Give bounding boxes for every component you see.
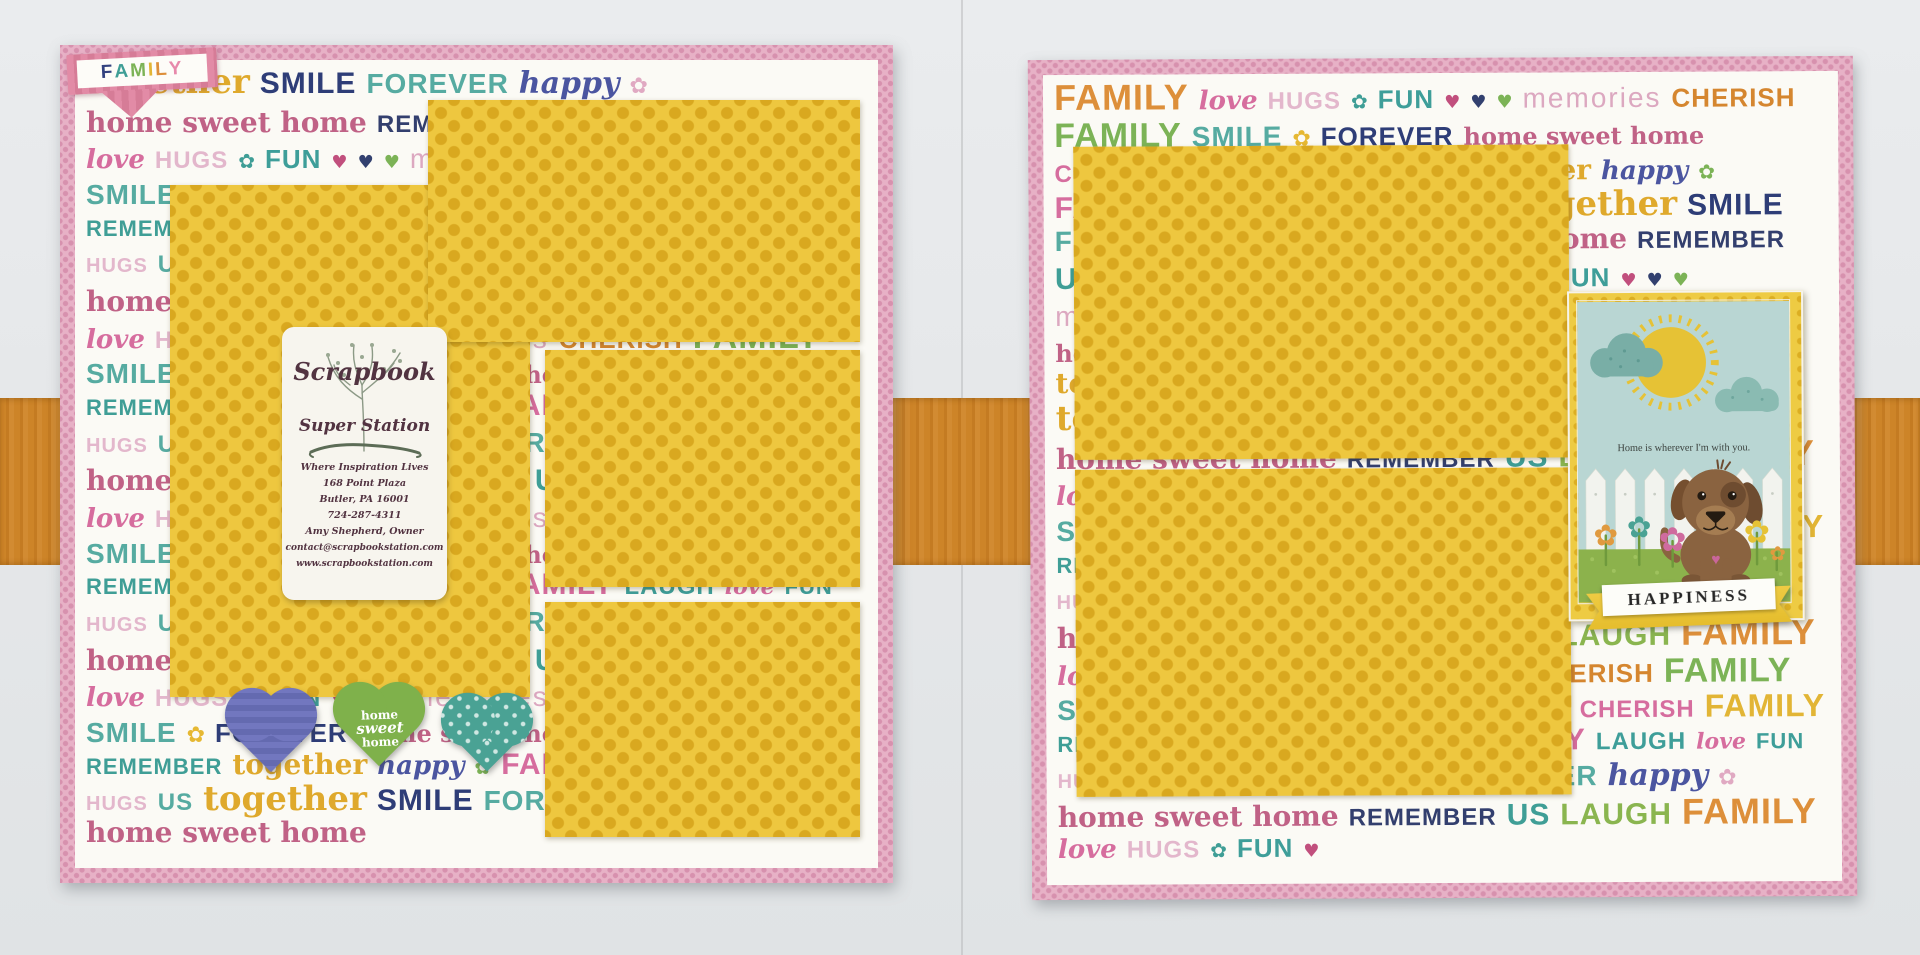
paper-word: FAMILY xyxy=(1054,79,1189,116)
paper-word: ✿ xyxy=(187,725,205,747)
business-card-phone: 724-287-4311 xyxy=(282,508,447,524)
paper-word: REMEMBER xyxy=(86,756,222,778)
dog-scene-illustration: Home is wherever I'm with you. xyxy=(1577,300,1791,603)
paper-word: happy xyxy=(519,69,620,100)
paper-word: SMILE xyxy=(86,719,177,748)
paper-word: ♥ xyxy=(384,154,400,172)
paper-word: HUGS xyxy=(1127,838,1200,863)
happiness-banner: HAPPINESS xyxy=(1585,571,1792,643)
right-photo-mat-top xyxy=(1073,144,1570,460)
paper-word: happy xyxy=(377,753,464,780)
paper-word: SMILE xyxy=(86,360,177,389)
paper-word: FUN xyxy=(1237,835,1294,862)
paper-word: ✿ xyxy=(1210,840,1227,860)
business-card-address1: 168 Point Plaza xyxy=(282,476,447,492)
family-banner: FAMILY xyxy=(66,47,219,125)
left-photo-mat-bottom-right xyxy=(545,602,860,837)
paper-word: love xyxy=(86,506,145,533)
paper-word: SMILE xyxy=(86,540,177,569)
paper-word: ♥ xyxy=(358,154,374,172)
dog-chest-heart-icon: ♥ xyxy=(1711,551,1720,568)
paper-word: ✿ xyxy=(629,76,647,98)
paper-word: SMILE xyxy=(86,181,177,210)
paper-word: LAUGH xyxy=(1560,800,1672,831)
business-card-title: Scrapbook xyxy=(282,357,447,386)
family-banner-letter: L xyxy=(155,59,170,82)
svg-text:✿: ✿ xyxy=(1658,522,1686,559)
scene-message: Home is wherever I'm with you. xyxy=(1617,442,1750,454)
paper-word: happy xyxy=(1601,158,1688,185)
paper-word: ✿ xyxy=(238,151,255,171)
paper-word: ♥ xyxy=(1470,94,1486,112)
paper-word: SMILE xyxy=(260,69,357,100)
green-heart-text: home sweet home xyxy=(329,707,430,749)
family-banner-letter: A xyxy=(114,61,131,84)
paper-word: FAMILY xyxy=(1664,653,1792,688)
paper-word: home sweet home xyxy=(86,819,367,848)
paper-word: love xyxy=(1199,88,1258,115)
paper-word: love xyxy=(1058,837,1117,864)
paper-word: FUN xyxy=(1756,730,1804,753)
paper-word: SMILE xyxy=(377,786,474,817)
photo-backdrop: togetherSMILEFOREVERhappy✿home sweet hom… xyxy=(0,0,1920,955)
business-card-subtitle: Super Station xyxy=(282,416,447,436)
left-photo-mat-middle-right xyxy=(545,350,860,587)
family-banner-letter: F xyxy=(100,61,115,84)
paper-word: ✿ xyxy=(1698,162,1715,182)
paper-word: HUGS xyxy=(86,256,148,276)
paper-word: love xyxy=(86,327,145,354)
paper-word: ♥ xyxy=(1673,272,1689,290)
paper-word: home sweet home xyxy=(1058,803,1339,833)
paper-word: memories xyxy=(1522,84,1661,113)
purple-striped-heart xyxy=(230,693,284,747)
paper-word: HUGS xyxy=(86,794,148,814)
left-scrapbook-page: togetherSMILEFOREVERhappy✿home sweet hom… xyxy=(60,45,893,883)
paper-word: together xyxy=(203,782,367,817)
paper-word: HUGS xyxy=(86,436,148,456)
paper-word: love xyxy=(1696,730,1746,753)
business-card-tagline: Where Inspiration Lives xyxy=(282,460,447,476)
paper-word: FOREVER xyxy=(366,70,508,99)
paper-word: FAMILY xyxy=(1682,793,1817,830)
paper-word: love xyxy=(86,685,145,712)
paper-word: REMEMBER xyxy=(1349,806,1497,831)
paper-word: ♥ xyxy=(1303,842,1319,860)
paper-word: HUGS xyxy=(155,149,228,173)
paper-word: happy xyxy=(1607,761,1708,792)
paper-word: FUN xyxy=(1378,86,1435,113)
paper-word: ♥ xyxy=(1444,94,1460,112)
paper-word: CHERISH xyxy=(1580,698,1695,723)
business-card-owner: Amy Shepherd, Owner xyxy=(282,524,447,540)
paper-word: ✿ xyxy=(1351,91,1368,111)
family-banner-letter: Y xyxy=(168,58,184,81)
paper-word: ♥ xyxy=(1620,272,1636,290)
paper-word: ♥ xyxy=(1647,272,1663,290)
paper-word: ✿ xyxy=(1718,768,1737,791)
family-banner-letter: M xyxy=(130,60,149,83)
paper-word: HUGS xyxy=(86,615,148,635)
svg-text:✿: ✿ xyxy=(1627,511,1652,544)
paper-word: ♥ xyxy=(1496,94,1512,112)
svg-text:✿: ✿ xyxy=(1744,515,1770,550)
paper-word: together xyxy=(232,751,367,780)
right-photo-mat-bottom xyxy=(1075,467,1572,797)
svg-text:✿: ✿ xyxy=(1593,519,1618,552)
paper-word: REMEMBER xyxy=(1637,228,1785,253)
paper-word: FAMILY xyxy=(1705,689,1826,722)
paper-word: CHERISH xyxy=(1671,84,1795,111)
paper-word: FUN xyxy=(265,146,321,173)
paper-word: LAUGH xyxy=(1596,730,1686,755)
right-scrapbook-page: FAMILYloveHUGS✿FUN♥♥♥memoriesCHERISHFAMI… xyxy=(1028,56,1857,900)
family-banner-tail xyxy=(100,88,161,119)
swash-divider-icon xyxy=(305,440,425,458)
paper-word: love xyxy=(86,147,145,174)
paper-word: HUGS xyxy=(1268,90,1341,115)
paper-word: US xyxy=(1507,801,1551,832)
paper-word: US xyxy=(158,791,193,815)
paper-word: SMILE xyxy=(1687,190,1784,221)
business-card-website: www.scrapbookstation.com xyxy=(282,556,447,572)
left-photo-mat-top-right xyxy=(428,100,860,342)
business-card-email: contact@scrapbookstation.com xyxy=(282,540,447,556)
business-card: Scrapbook Super Station Where Inspiratio… xyxy=(282,327,447,600)
paper-word: ♥ xyxy=(331,154,347,172)
business-card-address2: Butler, PA 16001 xyxy=(282,492,447,508)
teal-polkadot-heart xyxy=(448,697,498,747)
svg-text:✿: ✿ xyxy=(1769,543,1786,565)
